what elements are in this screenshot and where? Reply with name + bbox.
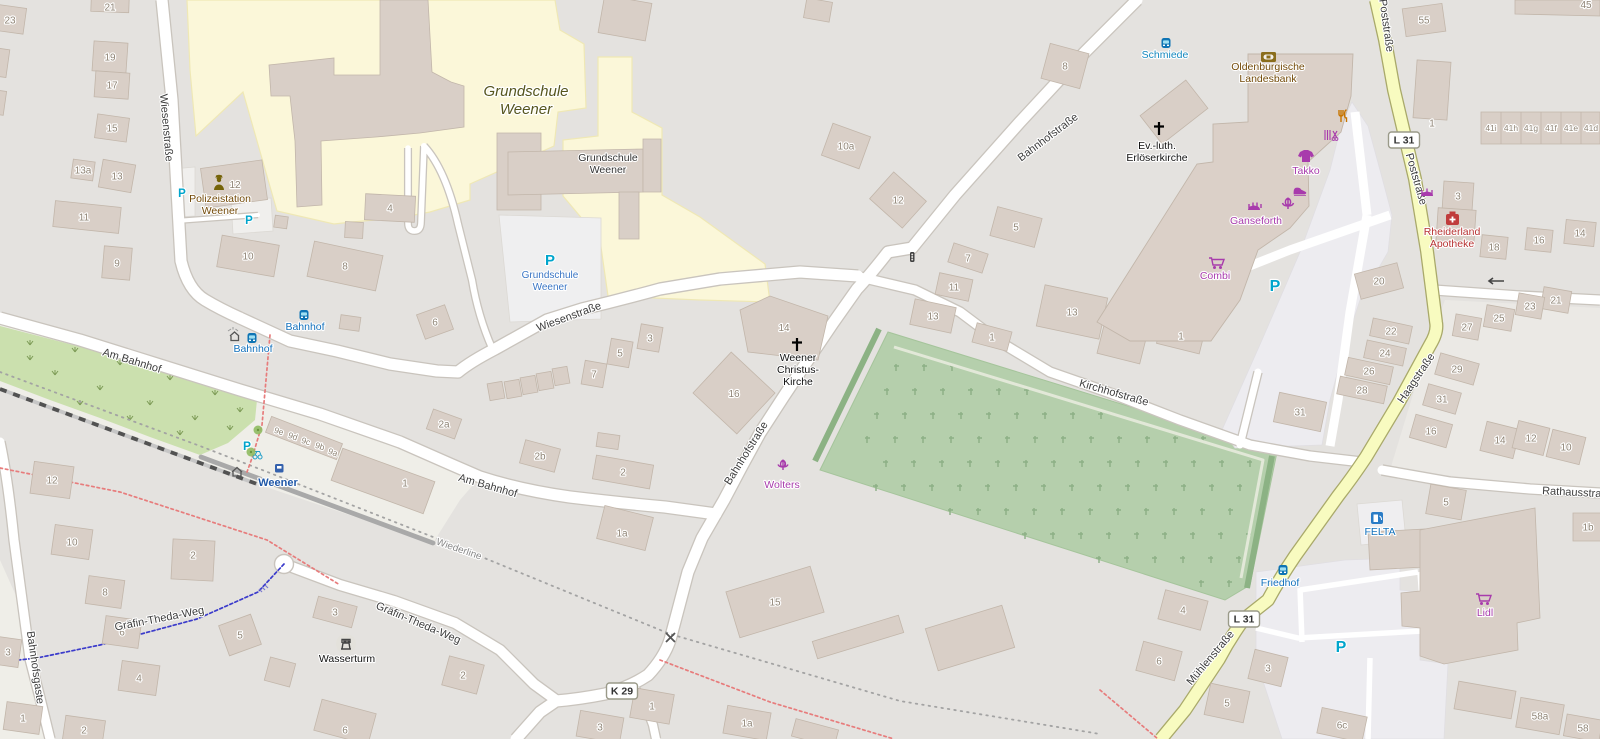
svg-text:11: 11	[949, 283, 960, 294]
svg-text:1: 1	[1178, 332, 1184, 343]
svg-text:1: 1	[989, 333, 995, 344]
svg-text:Weener: Weener	[202, 205, 239, 217]
svg-text:21: 21	[104, 3, 116, 14]
svg-text:Christus-: Christus-	[777, 364, 820, 376]
svg-text:4: 4	[136, 674, 142, 685]
svg-text:19: 19	[104, 53, 116, 64]
svg-text:20: 20	[1373, 277, 1385, 288]
svg-text:Weener: Weener	[533, 282, 569, 293]
svg-text:29: 29	[1451, 365, 1463, 376]
svg-text:4: 4	[1180, 606, 1186, 617]
svg-text:L 31: L 31	[1394, 135, 1415, 147]
svg-text:Ganseforth: Ganseforth	[1230, 215, 1282, 227]
svg-text:Grundschule: Grundschule	[578, 152, 638, 164]
svg-text:Bahnhof: Bahnhof	[285, 321, 324, 333]
svg-text:31: 31	[1294, 408, 1306, 419]
svg-text:Weener: Weener	[258, 477, 298, 489]
svg-text:1: 1	[402, 479, 408, 490]
svg-text:8: 8	[102, 588, 108, 599]
svg-text:10: 10	[66, 538, 78, 549]
svg-text:41e: 41e	[1564, 123, 1578, 133]
svg-text:2a: 2a	[438, 420, 450, 431]
svg-text:3: 3	[647, 334, 653, 345]
svg-text:12: 12	[46, 476, 58, 487]
svg-text:45: 45	[1580, 0, 1592, 11]
svg-text:8: 8	[342, 262, 348, 273]
svg-text:2: 2	[460, 671, 466, 682]
svg-text:22: 22	[1385, 327, 1397, 338]
svg-text:5: 5	[617, 349, 623, 360]
svg-text:5: 5	[1443, 498, 1449, 509]
svg-text:Grundschule: Grundschule	[483, 83, 568, 100]
svg-text:12: 12	[229, 180, 241, 191]
svg-text:Weener: Weener	[590, 164, 627, 176]
svg-text:28: 28	[1356, 386, 1368, 397]
svg-text:12: 12	[1525, 434, 1537, 445]
svg-text:3: 3	[1265, 664, 1271, 675]
svg-text:10: 10	[242, 252, 254, 263]
svg-text:Wasserturm: Wasserturm	[319, 653, 375, 665]
svg-text:27: 27	[1461, 323, 1473, 334]
svg-text:41f: 41f	[1545, 123, 1557, 133]
svg-text:Friedhof: Friedhof	[1261, 577, 1300, 589]
svg-text:13: 13	[1066, 308, 1078, 319]
svg-text:2: 2	[190, 551, 196, 562]
svg-text:3: 3	[332, 608, 338, 619]
svg-text:6: 6	[1156, 657, 1162, 668]
svg-text:41h: 41h	[1504, 123, 1518, 133]
svg-text:3: 3	[5, 648, 11, 659]
svg-text:58: 58	[1577, 724, 1589, 735]
svg-text:17: 17	[106, 81, 118, 92]
svg-text:Weener: Weener	[780, 352, 817, 364]
svg-text:P: P	[545, 252, 555, 269]
svg-text:3: 3	[1455, 192, 1461, 203]
svg-text:16: 16	[728, 389, 740, 400]
svg-text:58a: 58a	[1532, 712, 1549, 723]
svg-text:24: 24	[1379, 349, 1391, 360]
svg-text:10a: 10a	[838, 142, 855, 153]
svg-text:P: P	[178, 188, 186, 200]
svg-text:15: 15	[106, 124, 118, 135]
svg-text:2: 2	[620, 468, 626, 479]
svg-text:41g: 41g	[1524, 123, 1538, 133]
svg-text:Erlöserkirche: Erlöserkirche	[1126, 152, 1187, 164]
svg-text:Grundschule: Grundschule	[522, 270, 579, 281]
svg-text:Weener: Weener	[500, 101, 553, 118]
svg-text:4: 4	[387, 204, 393, 215]
svg-text:23: 23	[4, 16, 16, 27]
svg-text:Combi: Combi	[1200, 270, 1230, 282]
svg-text:L 31: L 31	[1234, 614, 1255, 626]
svg-text:3: 3	[597, 723, 603, 734]
svg-text:Wolters: Wolters	[764, 479, 799, 491]
svg-text:13a: 13a	[75, 166, 92, 177]
svg-text:11: 11	[79, 213, 90, 224]
svg-text:Oldenburgische: Oldenburgische	[1231, 61, 1305, 73]
svg-text:16: 16	[1425, 427, 1437, 438]
svg-text:7: 7	[965, 254, 971, 265]
svg-text:5: 5	[1224, 699, 1230, 710]
svg-text:14: 14	[1574, 229, 1586, 240]
svg-text:FELTA: FELTA	[1364, 526, 1395, 538]
svg-text:Landesbank: Landesbank	[1239, 73, 1297, 85]
svg-text:12: 12	[892, 196, 904, 207]
svg-text:2b: 2b	[534, 452, 546, 463]
svg-text:10: 10	[1560, 443, 1572, 454]
svg-text:18: 18	[1488, 243, 1500, 254]
svg-text:14: 14	[1494, 436, 1506, 447]
svg-text:41d: 41d	[1584, 123, 1598, 133]
svg-text:1: 1	[1429, 119, 1435, 130]
svg-text:21: 21	[1550, 296, 1562, 307]
svg-text:1: 1	[649, 702, 655, 713]
svg-text:15: 15	[769, 598, 781, 609]
svg-text:9: 9	[114, 259, 120, 270]
svg-text:Lidl: Lidl	[1477, 607, 1493, 619]
svg-text:Takko: Takko	[1292, 165, 1320, 177]
svg-text:P: P	[1336, 639, 1347, 656]
svg-text:Kirche: Kirche	[783, 376, 813, 388]
svg-text:7: 7	[591, 370, 597, 381]
svg-text:41i: 41i	[1485, 123, 1496, 133]
svg-text:1b: 1b	[1582, 523, 1594, 534]
svg-text:Rheiderland: Rheiderland	[1424, 226, 1481, 238]
svg-text:P: P	[245, 215, 253, 227]
svg-text:26: 26	[1363, 367, 1375, 378]
svg-text:Polizeistation: Polizeistation	[189, 193, 251, 205]
svg-text:31: 31	[1436, 395, 1448, 406]
svg-text:5: 5	[237, 631, 243, 642]
svg-text:6: 6	[342, 726, 348, 737]
svg-text:13: 13	[111, 172, 123, 183]
svg-text:K 29: K 29	[611, 686, 633, 698]
svg-text:23: 23	[1524, 302, 1536, 313]
svg-text:14: 14	[778, 323, 790, 334]
svg-text:1a: 1a	[616, 529, 628, 540]
svg-text:2: 2	[81, 726, 87, 737]
svg-text:5: 5	[1013, 223, 1019, 234]
svg-text:1: 1	[20, 714, 26, 725]
svg-text:P: P	[1270, 278, 1281, 295]
svg-text:Ev.-luth.: Ev.-luth.	[1138, 140, 1176, 152]
svg-text:25: 25	[1493, 314, 1505, 325]
svg-text:55: 55	[1418, 16, 1430, 27]
svg-text:13: 13	[927, 312, 939, 323]
svg-text:8: 8	[1062, 62, 1068, 73]
svg-text:6c: 6c	[1337, 721, 1348, 732]
svg-text:Bahnhof: Bahnhof	[233, 343, 272, 355]
svg-text:1a: 1a	[741, 719, 753, 730]
svg-text:Apotheke: Apotheke	[1430, 238, 1475, 250]
svg-text:Schmiede: Schmiede	[1142, 49, 1189, 61]
svg-text:16: 16	[1533, 236, 1545, 247]
svg-text:6: 6	[432, 318, 438, 329]
